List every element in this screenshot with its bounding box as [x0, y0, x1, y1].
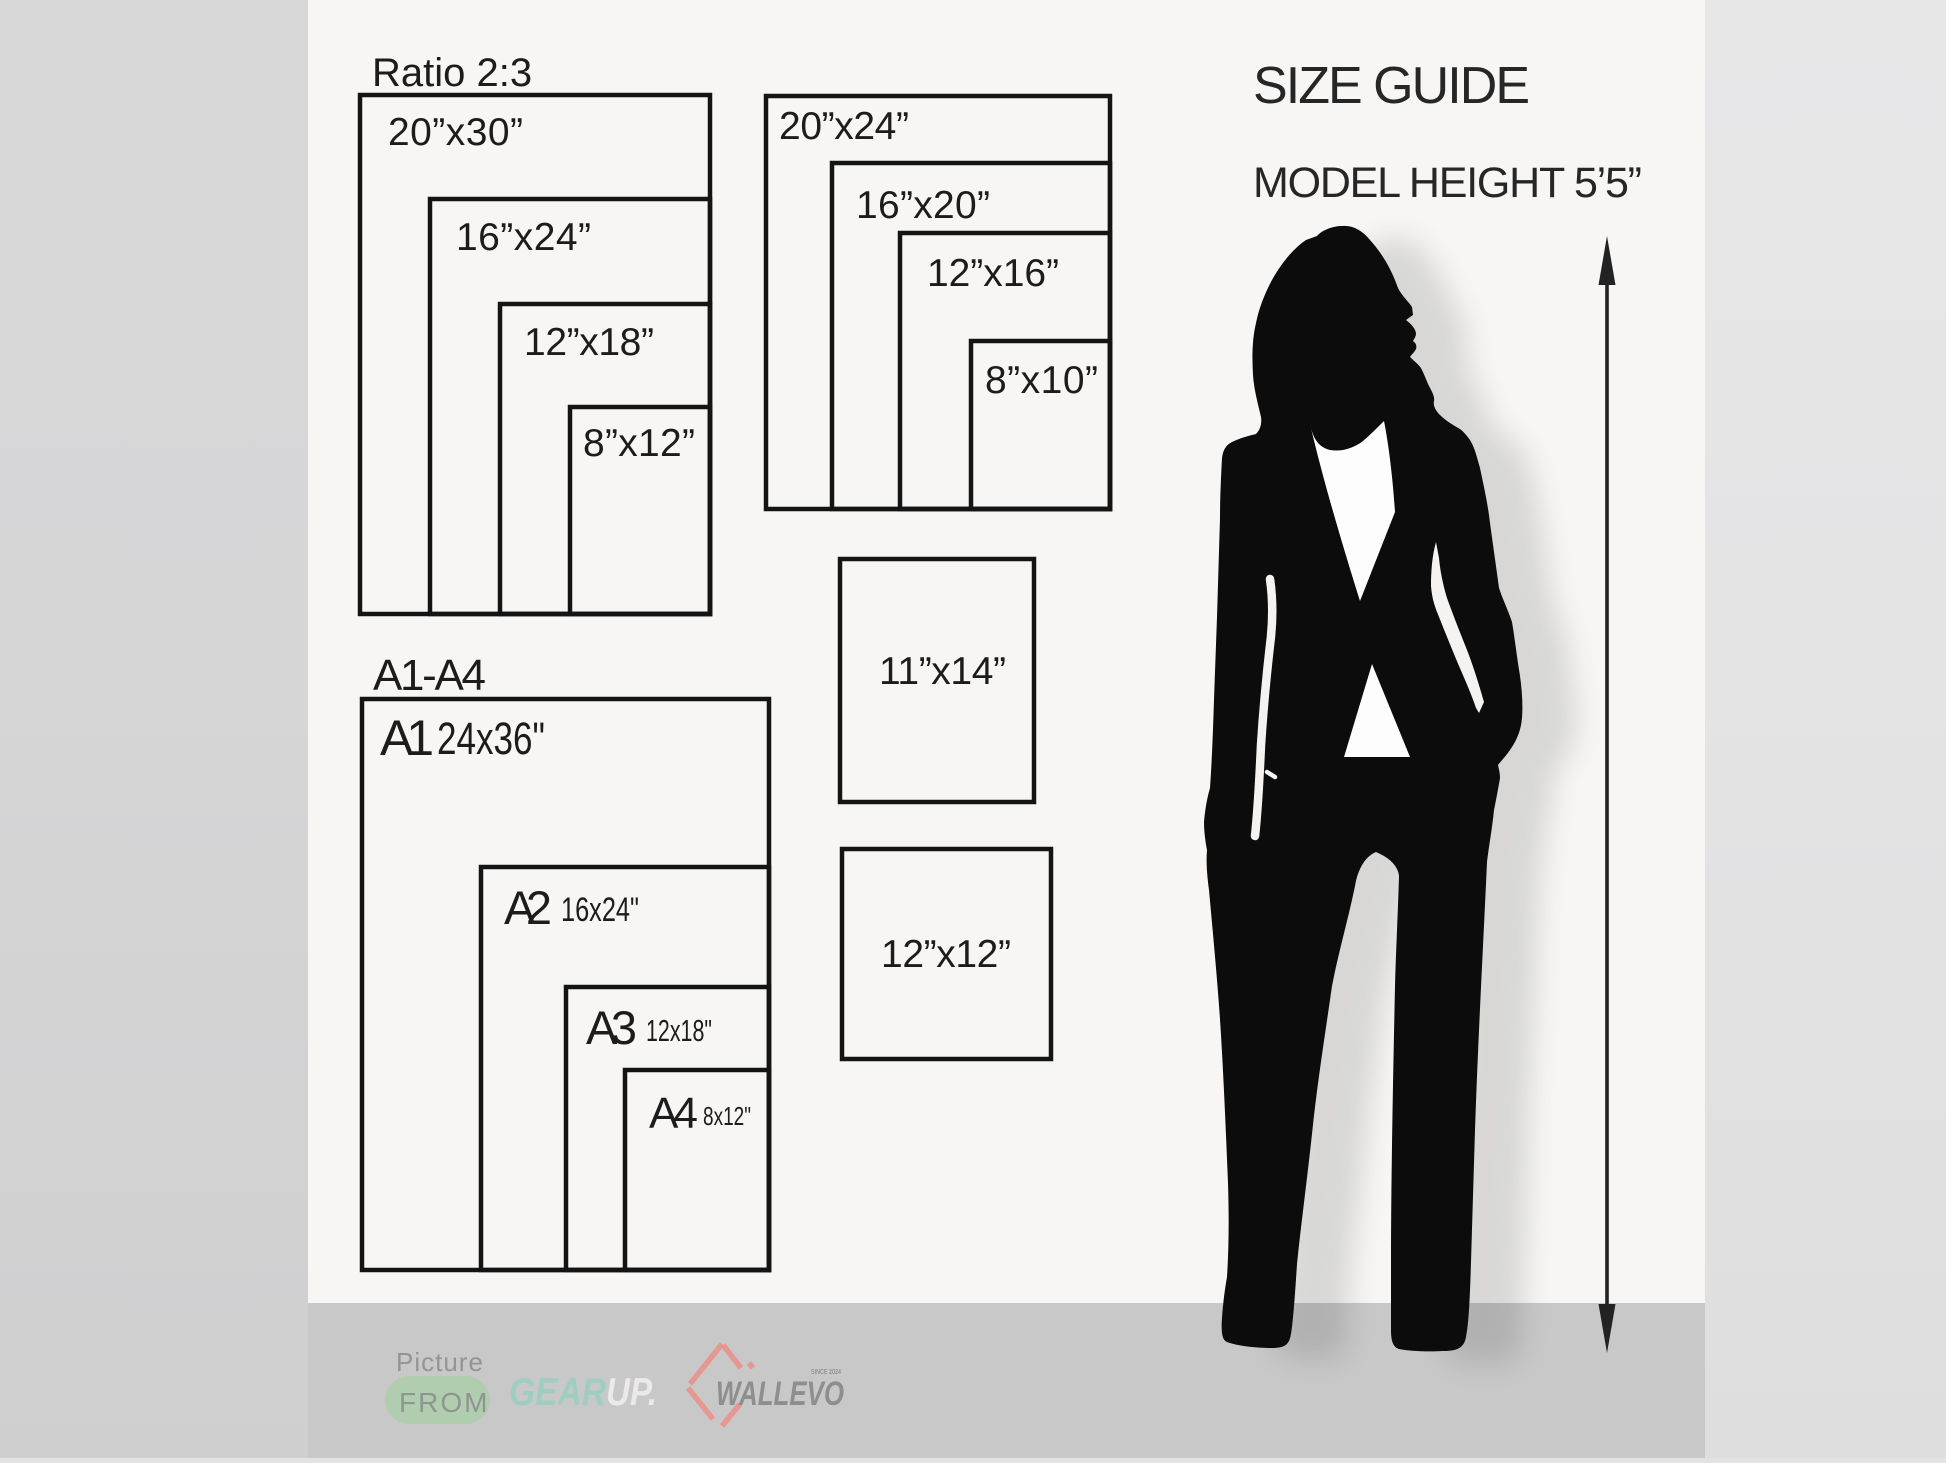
svg-text:UP.: UP. — [606, 1371, 657, 1414]
svg-text:12x18": 12x18" — [646, 1013, 712, 1048]
svg-text:12”x18”: 12”x18” — [524, 321, 654, 364]
svg-text:16”x20”: 16”x20” — [856, 184, 990, 227]
svg-text:8”x12”: 8”x12” — [583, 422, 695, 465]
svg-text:8x12": 8x12" — [703, 1101, 751, 1131]
svg-text:MODEL HEIGHT 5’5”: MODEL HEIGHT 5’5” — [1253, 159, 1642, 207]
svg-text:A4: A4 — [649, 1089, 698, 1138]
svg-text:24x36": 24x36" — [437, 713, 545, 764]
svg-text:SIZE GUIDE: SIZE GUIDE — [1253, 57, 1530, 115]
svg-text:12”x16”: 12”x16” — [927, 252, 1059, 295]
svg-text:SINCE 2024: SINCE 2024 — [811, 1369, 841, 1376]
svg-text:8”x10”: 8”x10” — [985, 359, 1098, 402]
svg-text:A1-A4: A1-A4 — [373, 651, 486, 700]
svg-text:16”x24”: 16”x24” — [456, 216, 591, 259]
svg-text:11”x14”: 11”x14” — [879, 650, 1006, 693]
svg-text:A3: A3 — [586, 1001, 637, 1054]
svg-text:20”x24”: 20”x24” — [779, 105, 909, 148]
svg-text:FROM: FROM — [399, 1387, 489, 1418]
svg-text:A2: A2 — [504, 881, 552, 934]
svg-text:WALLEVO: WALLEVO — [716, 1375, 844, 1413]
svg-text:12”x12”: 12”x12” — [881, 933, 1011, 976]
svg-text:GEAR: GEAR — [509, 1371, 606, 1414]
svg-text:20”x30”: 20”x30” — [388, 111, 523, 154]
svg-text:A1: A1 — [380, 710, 434, 766]
svg-text:Picture: Picture — [396, 1347, 484, 1377]
svg-text:16x24": 16x24" — [561, 891, 639, 929]
svg-text:Ratio 2:3: Ratio 2:3 — [372, 51, 532, 95]
